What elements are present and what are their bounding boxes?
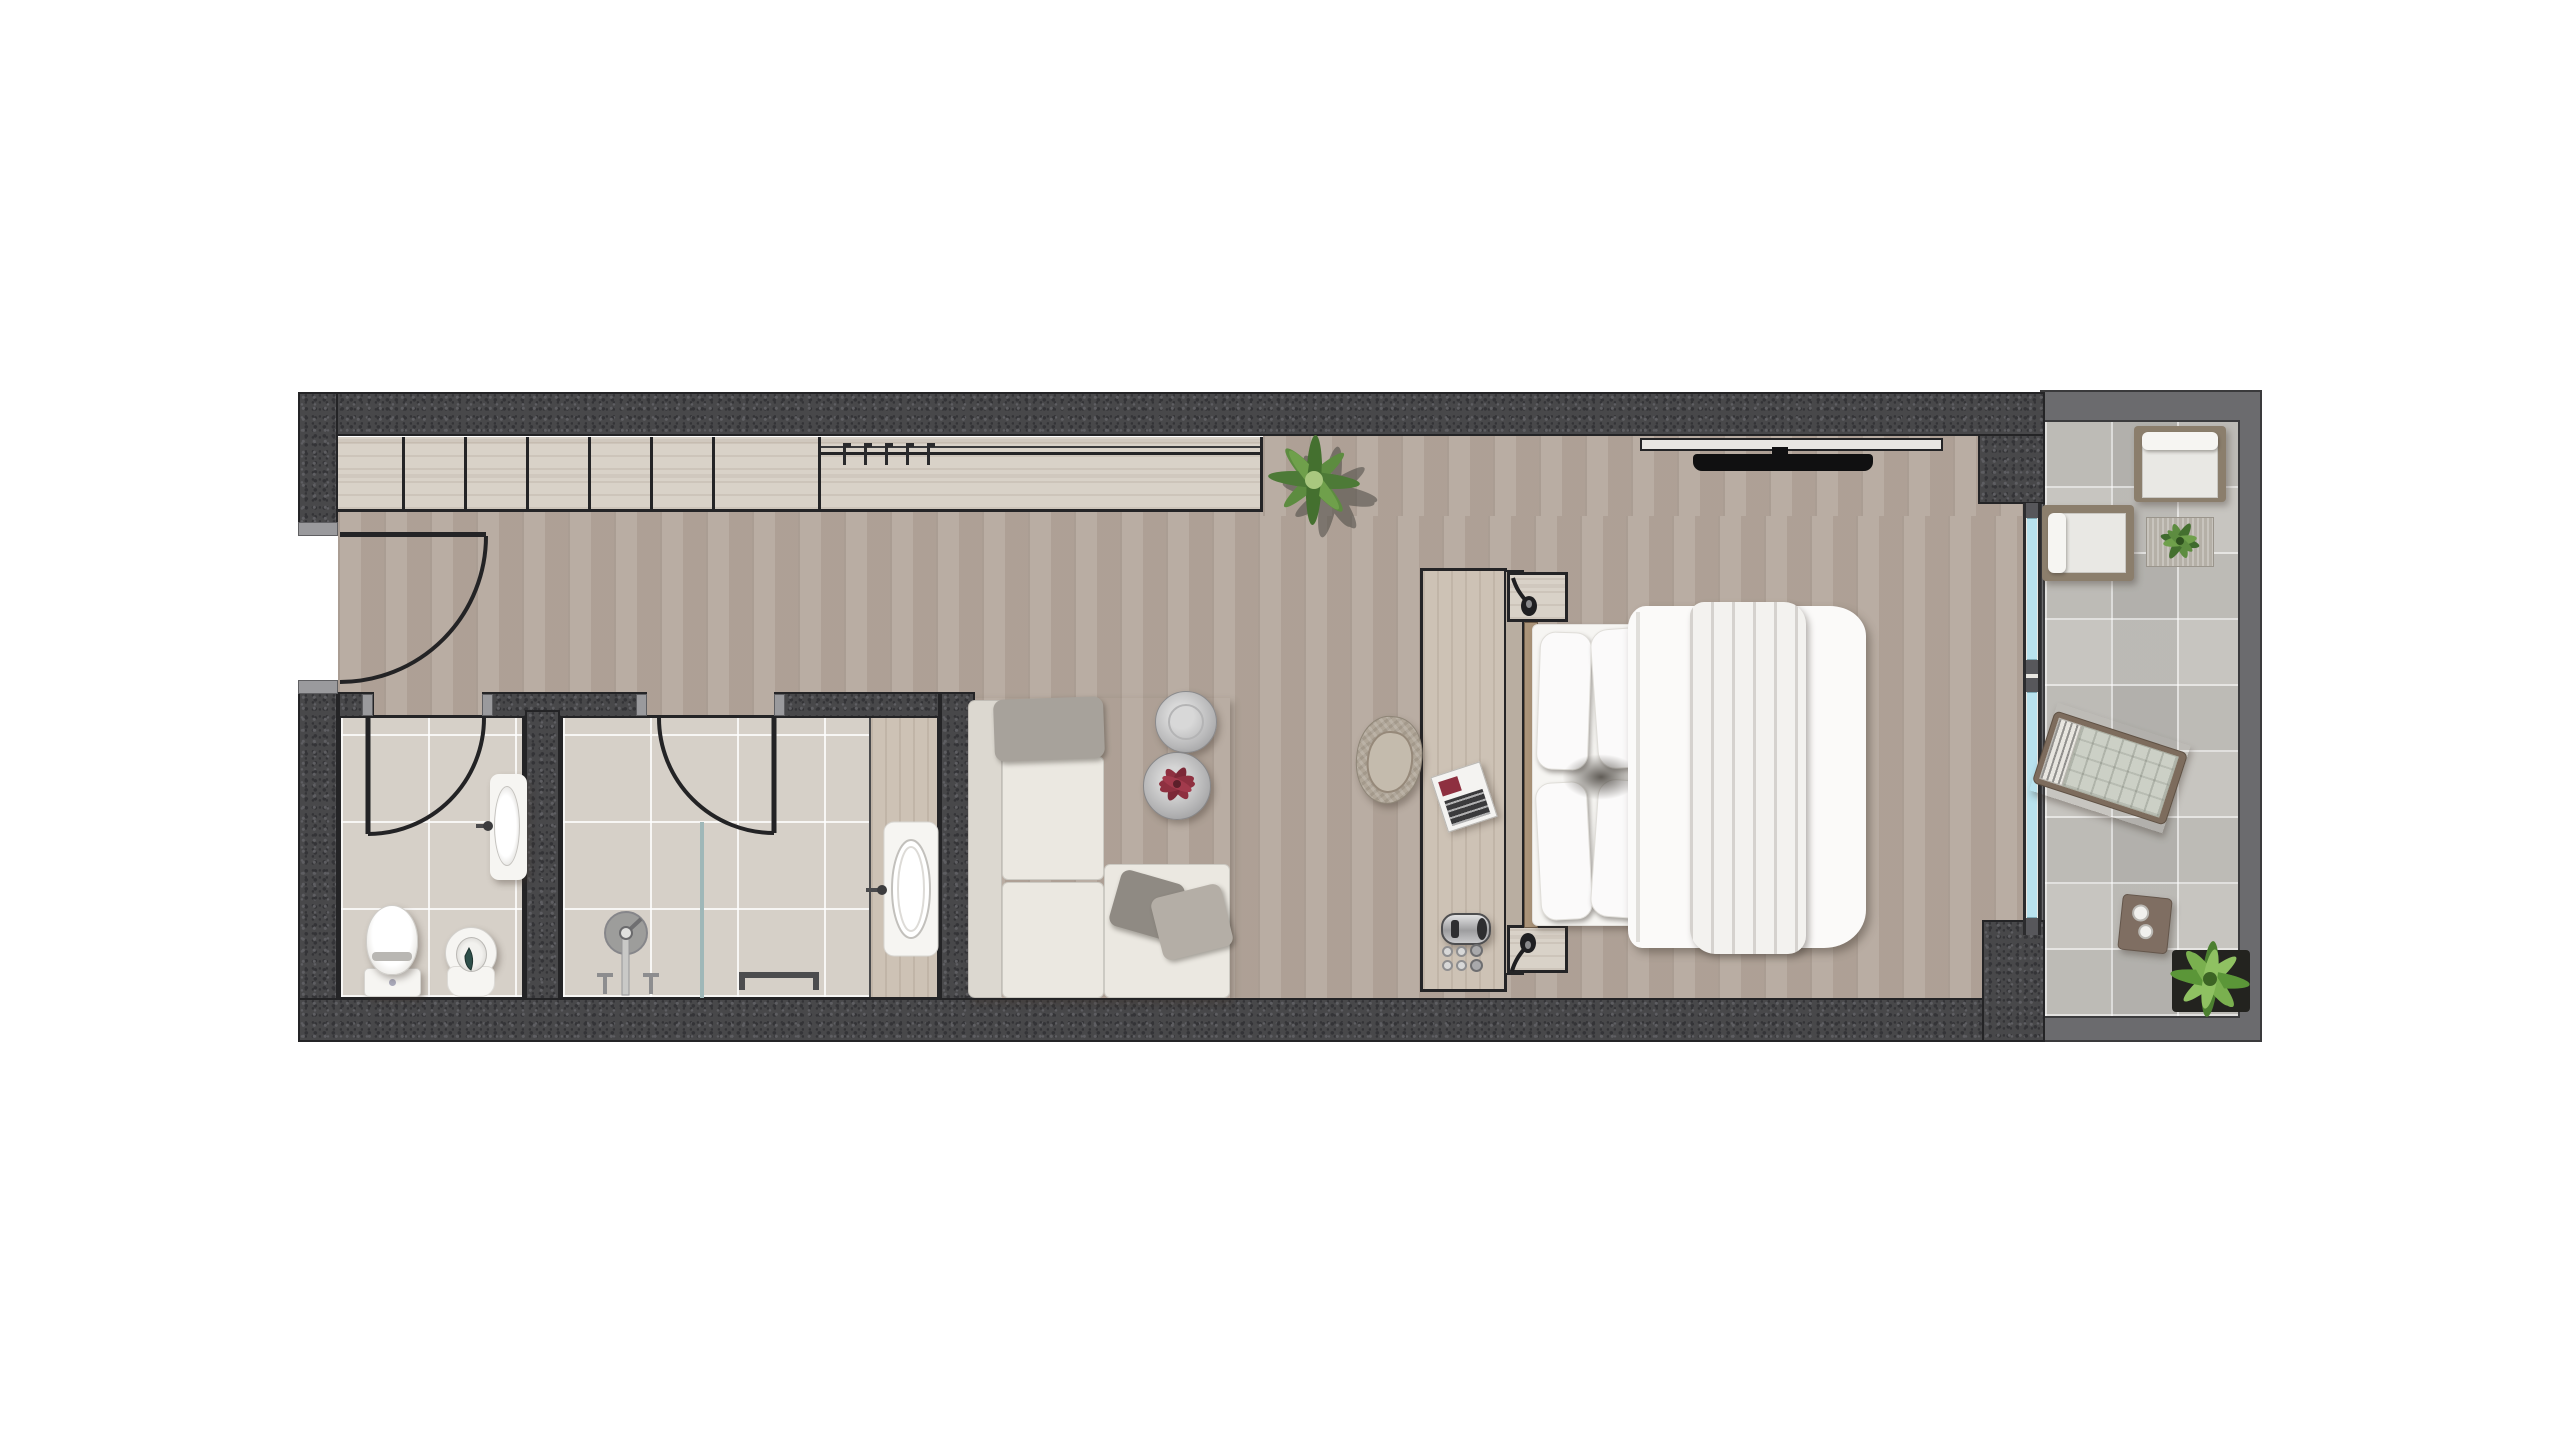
- armchair-cushion: [2142, 442, 2218, 498]
- cup: [2137, 923, 2153, 939]
- armchair-back-pillow: [2048, 513, 2066, 573]
- door-jamb: [362, 694, 373, 716]
- bed-duvet-fold: [1636, 612, 1640, 942]
- bathroom-top-wall-seg: [482, 692, 647, 718]
- balcony-rug: [2146, 517, 2214, 567]
- door-jamb: [482, 694, 493, 716]
- headboard-partition: [1504, 570, 1524, 975]
- armchair-back-pillow: [2142, 432, 2218, 450]
- wall-left-upper: [298, 392, 338, 525]
- balcony-plant-pot: [2172, 950, 2250, 1012]
- sofa-seat-cushion: [1002, 882, 1104, 998]
- cup: [1456, 946, 1467, 957]
- bed-pillow: [1534, 781, 1593, 922]
- hanger-icon: [885, 443, 893, 465]
- balcony-armchair-left: [2042, 505, 2134, 581]
- kettle: [1441, 913, 1491, 945]
- toilet-flush-button: [389, 979, 396, 986]
- door-jamb: [636, 694, 647, 716]
- balcony-side-table: [2117, 894, 2173, 955]
- entry-jamb: [298, 680, 338, 694]
- wall-tv: [1693, 454, 1873, 471]
- window-frame-block: [2026, 660, 2038, 674]
- bidet-basin: [456, 937, 487, 972]
- wardrobe-row: [338, 437, 1263, 512]
- wardrobe-divider: [464, 437, 467, 509]
- cup: [2131, 904, 2150, 923]
- window-glass: [2027, 518, 2037, 660]
- magazine-cover-red: [1438, 776, 1462, 796]
- wall-bottom: [298, 998, 2045, 1042]
- balcony-armchair-top: [2134, 426, 2226, 502]
- cup: [1470, 959, 1483, 972]
- bed-throw-blanket: [1690, 602, 1806, 954]
- window-frame-block: [2026, 503, 2038, 518]
- cup: [1470, 944, 1483, 957]
- sliding-window: [2023, 503, 2041, 935]
- wall-step-bottom-right: [1982, 920, 2045, 1042]
- pillar-top-right: [1978, 434, 2045, 504]
- hanger-icon: [927, 443, 935, 465]
- toilet-seat-line: [372, 952, 412, 961]
- hanger-icon: [906, 443, 914, 465]
- bathroom-top-wall-seg: [774, 692, 940, 718]
- wc-sink-basin: [494, 786, 520, 866]
- entry-jamb: [298, 522, 338, 536]
- entry-door-leaf: [340, 532, 486, 537]
- window-frame-block: [2026, 678, 2038, 692]
- wardrobe-divider: [526, 437, 529, 509]
- kettle-lid: [1477, 918, 1487, 940]
- kettle-handle: [1451, 920, 1459, 938]
- cup: [1442, 946, 1453, 957]
- sofa-seat-cushion: [1002, 756, 1104, 880]
- side-table-round-flower: [1143, 752, 1211, 820]
- coffee-table-round: [1155, 691, 1217, 753]
- wall-between-bathrooms: [525, 710, 560, 1000]
- wardrobe-divider: [588, 437, 591, 509]
- bed: [1524, 612, 1876, 948]
- shower-vanity-counter: [869, 718, 937, 997]
- door-jamb: [774, 694, 785, 716]
- cup: [1456, 960, 1467, 971]
- wall-left-lower: [298, 692, 338, 1042]
- lounger-cushion: [2062, 725, 2179, 817]
- tv-shelf-bracket: [1640, 438, 1943, 451]
- wardrobe-divider: [650, 437, 653, 509]
- window-frame-block: [2026, 918, 2038, 935]
- window-glass: [2027, 692, 2037, 918]
- hanger-icon: [864, 443, 872, 465]
- wardrobe-divider: [402, 437, 405, 509]
- toilet-bowl: [366, 905, 418, 975]
- cup: [1442, 960, 1453, 971]
- bed-pillow: [1536, 631, 1593, 771]
- magazine-cover-dark: [1444, 789, 1490, 826]
- floor-plan-canvas: [0, 0, 2560, 1440]
- wall-top: [298, 392, 2045, 436]
- armchair-cushion: [2058, 513, 2126, 573]
- hanger-icon: [843, 443, 851, 465]
- wardrobe-divider: [712, 437, 715, 509]
- armchair-seat: [1363, 729, 1416, 796]
- sofa-headrest-pillow: [993, 696, 1105, 762]
